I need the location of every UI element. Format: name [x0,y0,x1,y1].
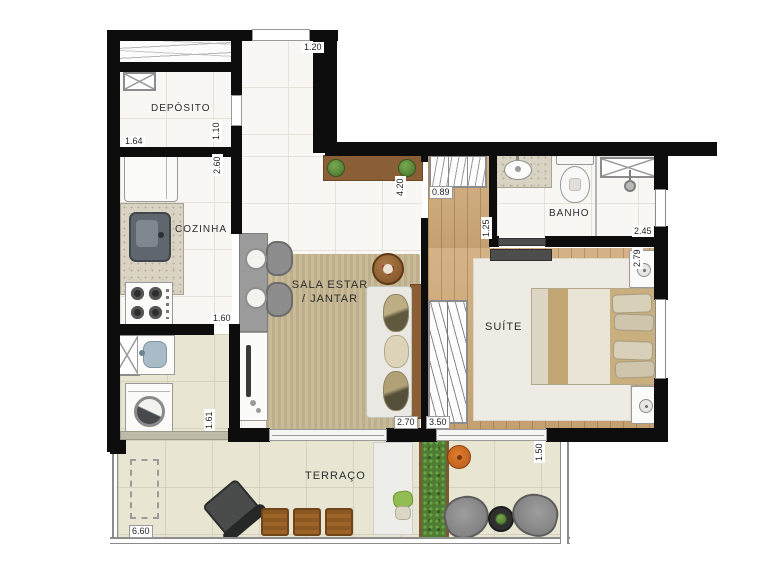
dim-servico-depth: 1.61 [204,409,215,431]
wall [112,324,214,335]
dim-cozinha-width: 1.60 [211,313,233,324]
stove [125,282,173,327]
laundry-tank [137,335,175,375]
wall [654,156,668,190]
bed [531,288,657,385]
wall [325,142,717,156]
sofa [366,286,412,418]
fridge [124,154,178,202]
deposito-door [231,95,242,126]
wardrobe [428,300,468,424]
shower-head-icon [624,180,636,192]
vertical-garden [419,437,449,542]
dim-terraco-width: 6.60 [129,525,153,538]
washing-machine [125,383,173,432]
bbq-projection [130,459,159,519]
bathroom-sink [504,160,532,180]
floor-plan: DEPÓSITO COZINHA SALA ESTAR / JANTAR BAN… [0,0,768,585]
room-label-sala: SALA ESTAR / JANTAR [288,278,372,306]
bed-pillow [615,360,656,378]
room-label-cozinha: COZINHA [175,224,227,235]
kitchen-sink [129,212,171,262]
toilet [556,152,594,205]
dim-banho-length: 2.45 [632,226,654,237]
dim-suite-length: 3.50 [426,416,450,429]
dim-closet-width: 0.89 [429,186,453,199]
wood-pouf [325,508,353,536]
wall [421,218,428,440]
wall [110,440,126,454]
dim-cozinha-depth: 2.60 [212,154,223,176]
dim-sala-width: 2.70 [394,416,418,429]
suite-terrace-sliding-door [436,429,547,441]
living-terrace-sliding-door [269,429,387,441]
round-table [372,253,404,285]
terrace-railing-east [560,440,569,544]
room-label-suite: SUÍTE [485,321,522,333]
shower-glass-divider [595,156,597,237]
dim-deposito-width: 1.64 [123,136,145,147]
wall [545,236,668,247]
bed-pillow [613,340,654,360]
terrace-railing-south [110,537,570,544]
dim-deposito-depth: 1.10 [211,120,222,142]
wall [546,428,668,442]
wall [231,126,242,234]
terrace-table [373,442,413,535]
potted-plant-icon [398,159,416,177]
bed-pillow [614,313,655,331]
wood-pouf [261,508,289,536]
bar-stool [245,287,267,309]
sofa-cushion [383,371,409,411]
wall [654,226,668,300]
dim-suite-width: 2.79 [632,247,643,269]
sofa-cushion [383,294,409,332]
terrace-railing-west [112,452,118,538]
dim-terraco-depth: 1.50 [534,441,545,463]
coffee-table-plant-icon [495,513,507,525]
terrace-chair-green-seat [395,506,411,520]
wood-pouf [293,508,321,536]
laundry-terrace-curb [120,431,230,440]
dim-hall-length: 4.20 [395,176,406,198]
dining-chair [266,241,293,276]
bathroom-window [655,189,666,227]
shower-base [600,157,656,178]
wall [229,324,240,440]
bathroom-sliding-door [498,238,546,246]
suite-window [655,299,666,379]
dim-entry-width: 1.20 [302,42,324,53]
wall [421,156,428,162]
room-label-deposito: DEPÓSITO [151,103,211,114]
room-label-terraco: TERRAÇO [305,470,366,482]
bed-pillow [612,293,653,313]
suite-dresser [490,249,552,261]
bar-stool [245,248,267,270]
orange-pouf [447,445,471,469]
potted-plant-icon [327,159,345,177]
wall [421,428,437,442]
tv-icon [246,345,251,397]
technical-shaft-hatch [119,39,233,63]
wall [107,30,120,452]
closet [429,155,487,188]
wall [228,428,270,442]
shower-stem-icon [629,170,631,180]
hall-floor [241,40,314,157]
sofa-cushion [384,335,409,368]
duct-box-icon [123,72,156,91]
tv-cabinet [239,332,268,421]
room-label-banho: BANHO [549,208,590,219]
dim-banho-width: 1.25 [481,217,492,239]
wall [112,62,238,72]
wall [386,428,423,442]
entry-door [252,29,310,41]
wall [107,30,240,41]
